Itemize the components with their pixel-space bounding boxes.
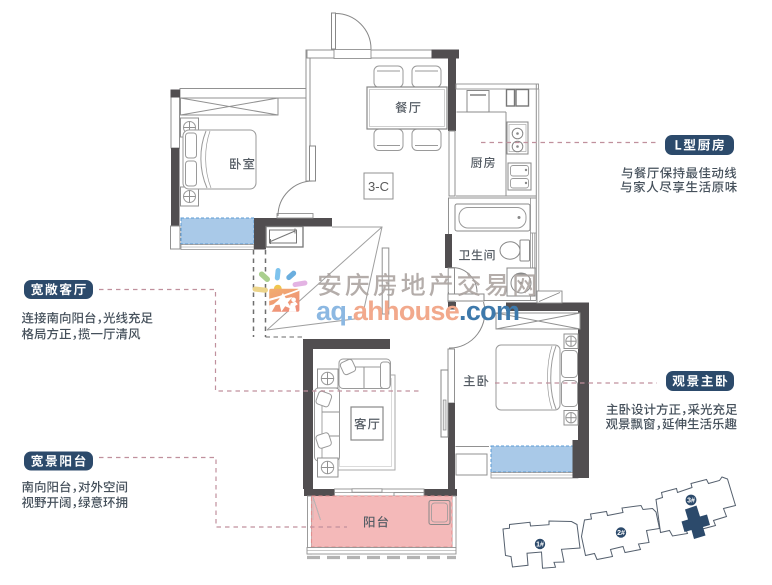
svg-text:aq.ahhouse.com: aq.ahhouse.com xyxy=(316,296,519,326)
svg-text:3#: 3# xyxy=(687,498,695,505)
svg-text:1#: 1# xyxy=(536,542,544,549)
svg-text:3-C: 3-C xyxy=(368,179,389,194)
svg-text:2#: 2# xyxy=(617,530,625,537)
